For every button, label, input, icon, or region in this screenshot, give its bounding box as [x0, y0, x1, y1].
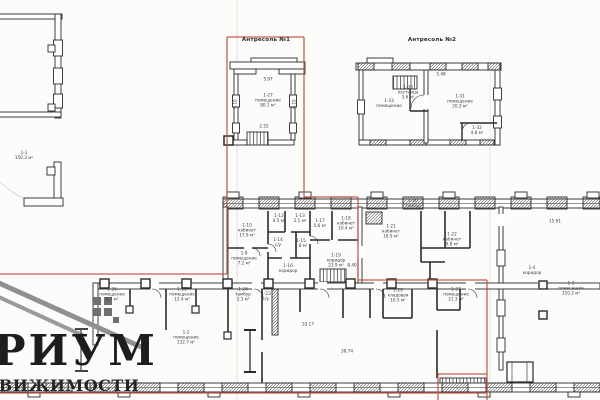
plan-label: 5.48: [436, 73, 445, 78]
plan-label: 1-32 4.8 м²: [471, 126, 484, 136]
plan-label: 15.91: [549, 220, 561, 225]
plan-label: 1-16 коридор: [279, 264, 298, 274]
plan-label: 1-21 кабинет 18.9 м²: [382, 225, 400, 240]
plan-label: 1-19 коридор 23.9 м²: [327, 254, 346, 269]
plan-label: 5.97: [263, 78, 272, 83]
plan-label: 1-2 помещение 132.7 м²: [173, 331, 199, 346]
plan-label: 1-30 лестница 3.6 м²: [398, 86, 419, 101]
plan-label: 1-24 тамбур 3.3 м²: [235, 288, 251, 303]
plan-label: 1-13 2.1 м²: [294, 214, 307, 224]
plan-label: 1-25 помещение 12.4 м²: [169, 288, 195, 303]
scanned-floor-plan: Антресоль №1 Антресоль №2 5.971-27 помещ…: [0, 0, 600, 400]
plan-label: 1-27 помещение 21.3 м²: [443, 288, 469, 303]
plan-label: 33.17: [302, 323, 314, 328]
plan-label: 1-12 4.5 м²: [273, 214, 286, 224]
plan-label: 1-26 помещение 8.7 м²: [99, 288, 125, 303]
plan-label: 1-15 2.8 м²: [295, 239, 308, 249]
plan-label: 1-29 кладовая 10.5 м²: [388, 289, 409, 304]
plan-label: 1-4 коридор: [523, 266, 542, 276]
plan-label: 1-18 кабинет 10.4 м²: [337, 217, 355, 232]
plan-label: 1-10 кабинет 17.9 м²: [238, 224, 256, 239]
logo-subtitle: ДВИЖИМОСТИ: [0, 376, 139, 395]
plan-label: 1-14 с/у: [273, 238, 283, 248]
logo-company-name: РИУМ: [0, 326, 158, 375]
plan-label: 1-22 кабинет 9.8 м²: [443, 233, 461, 248]
plan-label: 1-23 с/у: [261, 292, 271, 302]
plan-label: 1-1 150.3 м²: [15, 151, 33, 161]
plan-label: 2.52: [259, 125, 268, 130]
plan-label: 1-17 5.6 м²: [314, 219, 327, 229]
plan-label: 8.40: [347, 264, 356, 269]
plan-label: 6.10: [293, 99, 298, 108]
plan-label: 1-3 помещение 310.2 м²: [558, 282, 584, 297]
plan-label: 1-27 помещение 80.1 м²: [255, 94, 281, 109]
plan-label: 38.74: [341, 350, 353, 355]
plan-label: 6.10: [234, 99, 239, 108]
plan-label: 1-33 помещение: [376, 99, 402, 109]
plan-label: 1-31 помещение 20.3 м²: [447, 95, 473, 110]
plan-label: 1-20 тамбур: [405, 199, 421, 209]
plan-label: 1-9 помещение 7.2 м²: [231, 252, 257, 267]
